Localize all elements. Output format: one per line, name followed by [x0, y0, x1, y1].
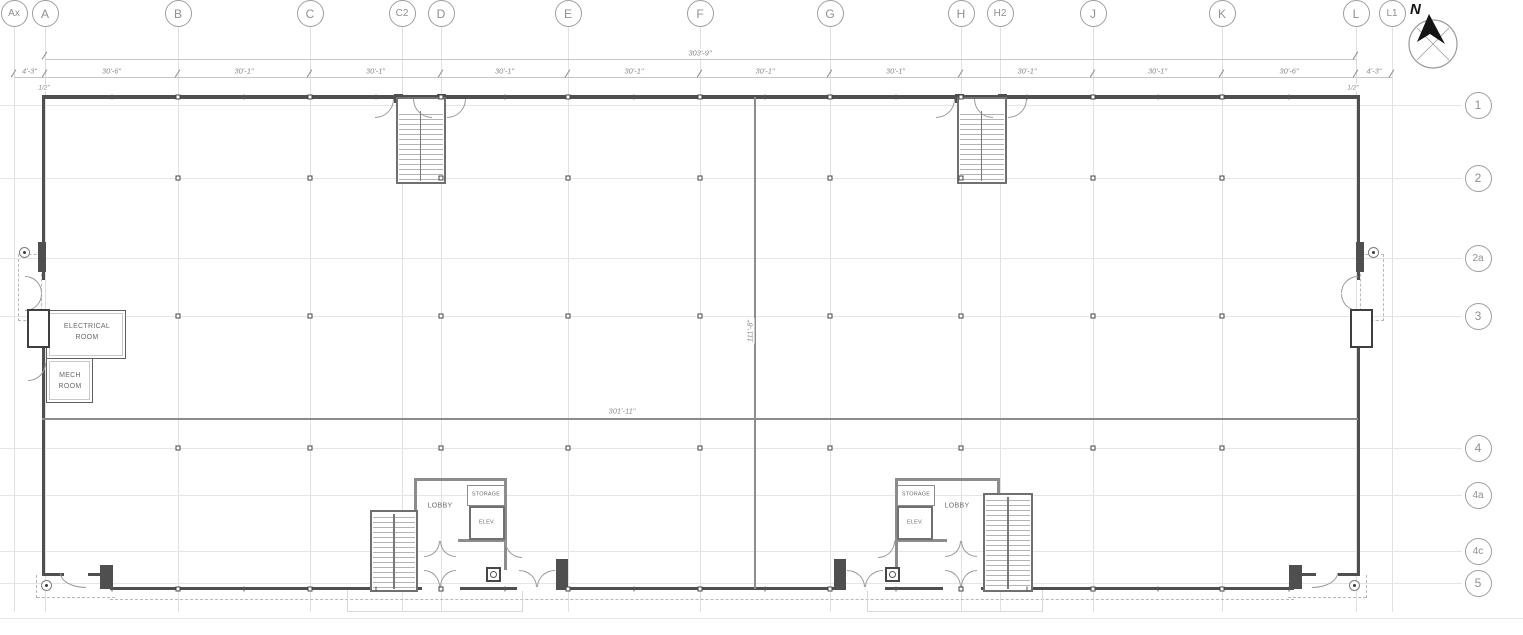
wall-column-marker: [1220, 94, 1225, 99]
elevator-left-label: ELEV.: [479, 519, 495, 526]
column-marker: [176, 446, 181, 451]
column-marker: [1220, 446, 1225, 451]
dim-segment-label: 30'-1": [1146, 67, 1169, 76]
overhang-dashed-line: [36, 575, 37, 598]
stair-rail: [420, 111, 422, 181]
grid-column-bubble-E: E: [555, 0, 582, 27]
alcove-wall-post: [38, 242, 46, 272]
wall-tick: [244, 94, 245, 99]
wall-tick: [1027, 586, 1028, 591]
overhang-dashed-line: [1288, 597, 1366, 598]
grid-row-bubble-1: 1: [1465, 92, 1492, 119]
dim-segment-label: 30'-1": [493, 67, 516, 76]
wall-tick: [375, 586, 376, 591]
north-label: N: [1410, 1, 1421, 18]
door-swing: [440, 541, 456, 557]
dim-segment-label: 30'-1": [1015, 67, 1038, 76]
stair-treads: [399, 114, 443, 180]
stair-rail: [981, 111, 983, 181]
grid-row-bubble-2a: 2a: [1465, 245, 1492, 272]
wall-post: [834, 559, 846, 589]
lobby-left-wall-west: [414, 478, 417, 514]
framed-door-right: [1350, 309, 1373, 348]
column-marker: [176, 314, 181, 319]
wall-column-marker: [439, 586, 444, 591]
wall-tick: [1027, 94, 1028, 99]
door-swing: [447, 99, 466, 118]
grid-column-bubble-D: D: [428, 0, 455, 27]
grid-row-bubble-4a: 4a: [1465, 482, 1492, 509]
dim-half-right: 1/2": [1345, 85, 1360, 92]
wall-tick: [111, 586, 112, 591]
dim-segment-label: 30'-6": [100, 67, 123, 76]
door-swing: [961, 541, 977, 557]
dim-segment-label: 30'-6": [1277, 67, 1300, 76]
column-marker: [959, 446, 964, 451]
grid-column-bubble-C2: C2: [389, 0, 416, 27]
entry-canopy-line: [867, 611, 1043, 612]
alcove-wall-post: [1356, 242, 1364, 272]
column-marker: [176, 176, 181, 181]
column-marker: [308, 176, 313, 181]
column-marker: [308, 446, 313, 451]
door-swing: [945, 570, 961, 587]
grid-column-line-E: [568, 27, 569, 612]
dim-segment-label: 30'-1": [622, 67, 645, 76]
grid-row-line-5: [0, 583, 1462, 584]
column-marker: [566, 446, 571, 451]
electrical-room-label: ELECTRICAL ROOM: [64, 321, 110, 343]
door-swing: [1341, 276, 1358, 293]
column-marker: [828, 314, 833, 319]
column-marker: [1220, 176, 1225, 181]
wall-tick: [375, 94, 376, 99]
dim-line-overall: [45, 59, 1356, 60]
wall-column-marker: [566, 586, 571, 591]
grid-column-line-F: [700, 27, 701, 612]
dim-segment-label: 4'-3": [20, 67, 39, 76]
column-marker: [308, 314, 313, 319]
column-marker: [566, 314, 571, 319]
column-marker: [1091, 176, 1096, 181]
grid-column-bubble-L: L: [1343, 0, 1370, 27]
column-dot-symbol: [1349, 580, 1360, 591]
column-dot-symbol: [41, 580, 52, 591]
sheet-bottom-line: [0, 618, 1523, 619]
storage-left-label: STORAGE: [472, 491, 500, 498]
wall-column-marker: [308, 94, 313, 99]
wall-tick: [765, 586, 766, 591]
wall-tick: [895, 94, 896, 99]
stair-rail: [393, 514, 395, 589]
column-marker: [1220, 314, 1225, 319]
lobby-right-wall-top: [895, 478, 1000, 481]
dim-segment-label: 30'-1": [884, 67, 907, 76]
column-marker: [566, 176, 571, 181]
wall-tick: [1157, 94, 1158, 99]
wall-tick: [895, 586, 896, 591]
entry-canopy-line: [347, 611, 523, 612]
entry-canopy-line: [867, 590, 868, 612]
door-swing: [424, 570, 440, 587]
wall-column-marker: [1091, 586, 1096, 591]
grid-column-bubble-H2: H2: [987, 0, 1014, 27]
exterior-wall-left-lower: [42, 310, 45, 575]
wall-column-marker: [959, 94, 964, 99]
wall-column-marker: [1091, 94, 1096, 99]
wall-tick: [1289, 586, 1290, 591]
grid-column-line-B: [178, 27, 179, 612]
stair-treads: [960, 114, 1004, 180]
grid-column-bubble-L1: L1: [1379, 0, 1406, 27]
column-dot-symbol: [1368, 247, 1379, 258]
grid-column-bubble-J: J: [1080, 0, 1107, 27]
wall-column-marker: [566, 94, 571, 99]
door-swing: [1312, 573, 1338, 588]
grid-column-bubble-G: G: [817, 0, 844, 27]
grid-column-bubble-K: K: [1209, 0, 1236, 27]
grid-row-line-4a: [0, 495, 1462, 496]
grid-column-bubble-F: F: [687, 0, 714, 27]
lobby-left-wall-top: [414, 478, 507, 481]
door-swing: [936, 99, 955, 118]
north-arrow: [1405, 14, 1461, 70]
door-swing: [60, 573, 86, 588]
overhang-dashed-line: [110, 599, 1294, 600]
dim-segment-label: 30'-1": [753, 67, 776, 76]
wall-tick: [504, 586, 505, 591]
entry-canopy-line: [347, 590, 348, 612]
grid-column-line-G: [830, 27, 831, 612]
door-swing: [375, 99, 394, 118]
dim-half-left: 1/2": [36, 85, 51, 92]
wall-column-marker: [698, 586, 703, 591]
wall-column-marker: [698, 94, 703, 99]
wall-tick: [1289, 94, 1290, 99]
grid-row-bubble-5: 5: [1465, 570, 1492, 597]
stair-rail: [1007, 497, 1009, 589]
wall-tick: [634, 586, 635, 591]
door-swing: [424, 541, 440, 557]
door-swing: [440, 570, 456, 587]
wall-column-marker: [959, 586, 964, 591]
wall-tick: [244, 586, 245, 591]
grid-column-line-C: [310, 27, 311, 612]
mech-room-label: MECH ROOM: [59, 370, 82, 392]
door-swing: [878, 541, 895, 558]
dim-overall-top: 303'-9": [686, 49, 713, 58]
column-marker: [698, 176, 703, 181]
grid-column-bubble-C: C: [297, 0, 324, 27]
dim-segment-label: 30'-1": [364, 67, 387, 76]
wall-post: [1289, 565, 1302, 589]
wall-tick: [504, 94, 505, 99]
freestanding-column: [486, 567, 501, 582]
wall-tick: [765, 94, 766, 99]
wall-post: [556, 559, 568, 589]
grid-row-line-1: [0, 105, 1462, 106]
grid-column-bubble-A: A: [32, 0, 59, 27]
floor-plan-sheet: 303'-9" 1/2" 1/2" 301'-11" 111'-8" ELECT…: [0, 0, 1523, 635]
wall-column-marker: [439, 94, 444, 99]
column-marker: [828, 176, 833, 181]
grid-row-bubble-3: 3: [1465, 303, 1492, 330]
wall-tick: [1157, 586, 1158, 591]
grid-column-bubble-Ax: Ax: [1, 0, 28, 27]
wall-column-marker: [176, 94, 181, 99]
door-swing: [505, 541, 522, 558]
wall-column-marker: [176, 586, 181, 591]
grid-column-line-L1: [1392, 27, 1393, 612]
overhang-dashed-line: [1366, 575, 1367, 598]
grid-column-bubble-B: B: [165, 0, 192, 27]
dim-line-bays: [14, 77, 1392, 78]
entry-canopy-line: [1042, 590, 1043, 612]
framed-door-left: [27, 309, 50, 348]
column-dot-symbol: [19, 247, 30, 258]
interior-fire-wall: [42, 418, 1358, 420]
column-marker: [828, 446, 833, 451]
grid-row-bubble-4: 4: [1465, 435, 1492, 462]
grid-row-line-4c: [0, 551, 1462, 552]
dim-interior-width: 301'-11": [607, 407, 638, 416]
storage-right-label: STORAGE: [902, 491, 930, 498]
elevator-right-label: ELEV.: [907, 519, 923, 526]
door-swing: [847, 570, 865, 587]
grid-row-bubble-4c: 4c: [1465, 538, 1492, 565]
column-marker: [439, 176, 444, 181]
door-swing: [519, 570, 537, 587]
column-marker: [1091, 314, 1096, 319]
wall-column-marker: [828, 94, 833, 99]
grid-row-line-2: [0, 178, 1462, 179]
column-marker: [439, 446, 444, 451]
wall-column-marker: [1220, 586, 1225, 591]
lobby-left-label: LOBBY: [428, 500, 453, 511]
lobby-right-label: LOBBY: [945, 500, 970, 511]
north-arrow-icon: [1405, 14, 1461, 70]
grid-column-line-Ax: [14, 27, 15, 612]
column-marker: [959, 314, 964, 319]
column-marker: [959, 176, 964, 181]
door-swing: [865, 570, 883, 587]
door-swing: [961, 570, 977, 587]
corner-wall-br-b: [1338, 573, 1360, 576]
grid-column-bubble-H: H: [948, 0, 975, 27]
grid-row-line-3: [0, 316, 1462, 317]
entry-canopy-line: [522, 590, 523, 612]
overhang-dashed-line: [37, 597, 115, 598]
wall-tick: [111, 94, 112, 99]
exterior-wall-right-lower: [1357, 310, 1360, 575]
grid-row-line-4: [0, 448, 1462, 449]
door-swing: [537, 570, 555, 587]
door-swing: [1008, 99, 1027, 118]
wall-column-marker: [828, 586, 833, 591]
dim-segment-label: 4'-3": [1365, 67, 1384, 76]
column-marker: [1091, 446, 1096, 451]
grid-row-bubble-2: 2: [1465, 165, 1492, 192]
dim-interior-height: 111'-8": [746, 318, 755, 344]
grid-column-line-J: [1093, 27, 1094, 612]
column-marker: [698, 314, 703, 319]
grid-row-line-2a: [0, 258, 1462, 259]
column-marker: [439, 314, 444, 319]
wall-column-marker: [308, 586, 313, 591]
freestanding-column: [885, 567, 900, 582]
door-swing: [945, 541, 961, 557]
grid-column-line-K: [1222, 27, 1223, 612]
column-marker: [698, 446, 703, 451]
wall-tick: [634, 94, 635, 99]
dim-segment-label: 30'-1": [232, 67, 255, 76]
